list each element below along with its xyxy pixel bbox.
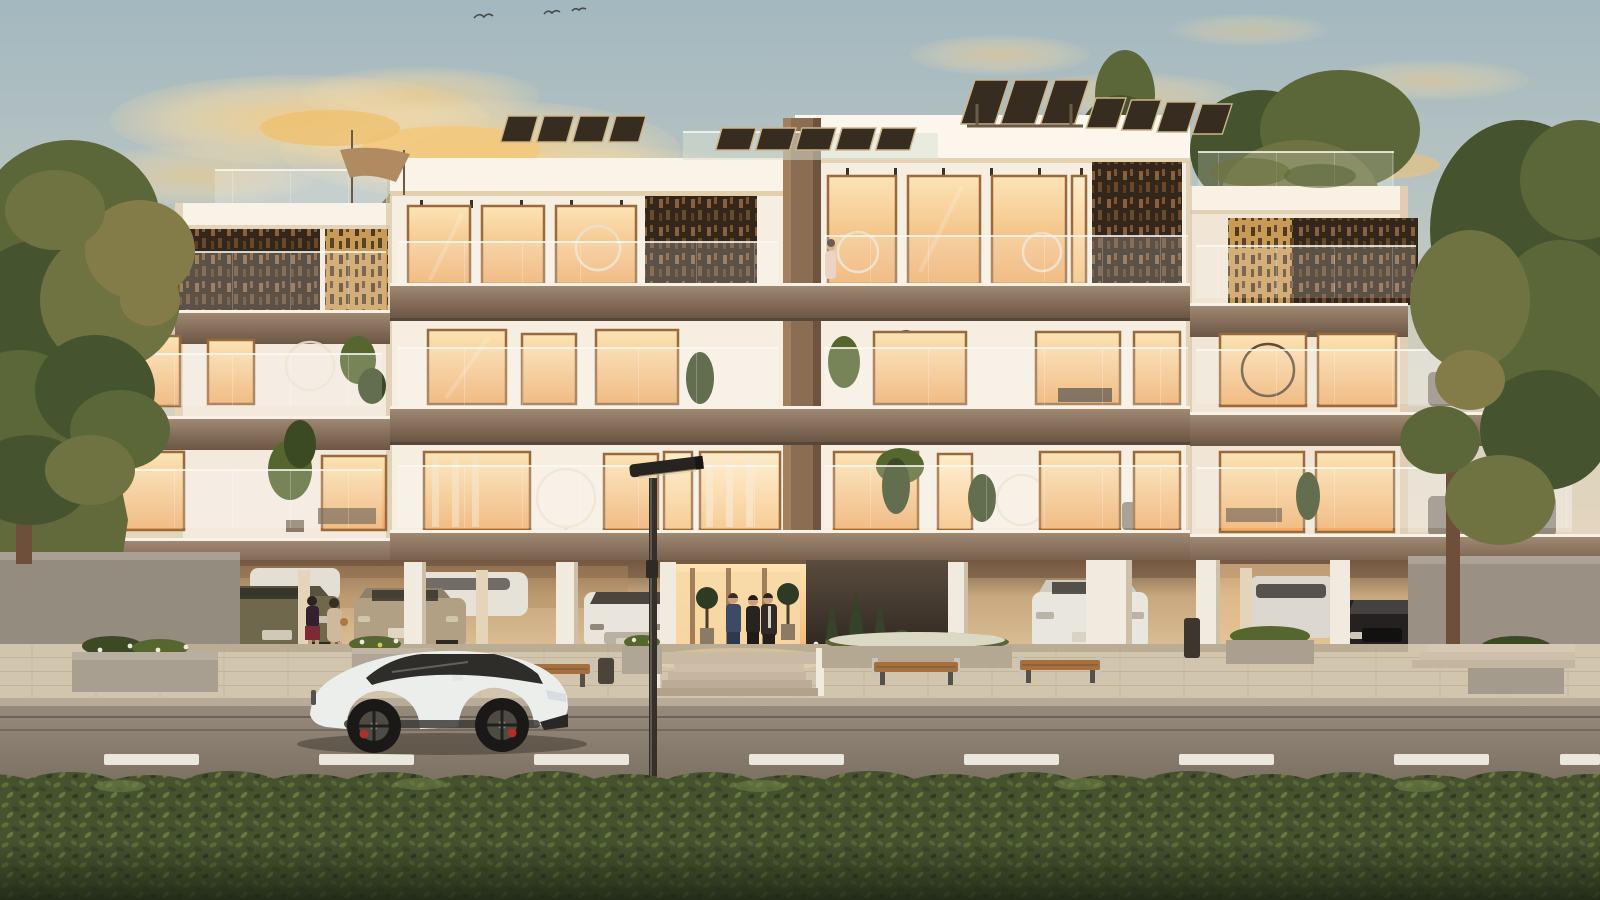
front-wheel xyxy=(475,698,529,752)
trash-bin xyxy=(1184,618,1200,658)
architectural-render xyxy=(0,0,1600,900)
taillight xyxy=(311,690,316,705)
trash-bin xyxy=(598,658,614,684)
scene-viewport xyxy=(0,0,1600,900)
side-mirror xyxy=(452,675,463,681)
hedge xyxy=(0,771,1600,900)
right-steps xyxy=(1412,644,1575,668)
left-retaining-wall xyxy=(0,552,240,646)
entrance-steps xyxy=(652,648,824,696)
planter xyxy=(1226,626,1314,664)
rear-wheel xyxy=(347,699,401,753)
